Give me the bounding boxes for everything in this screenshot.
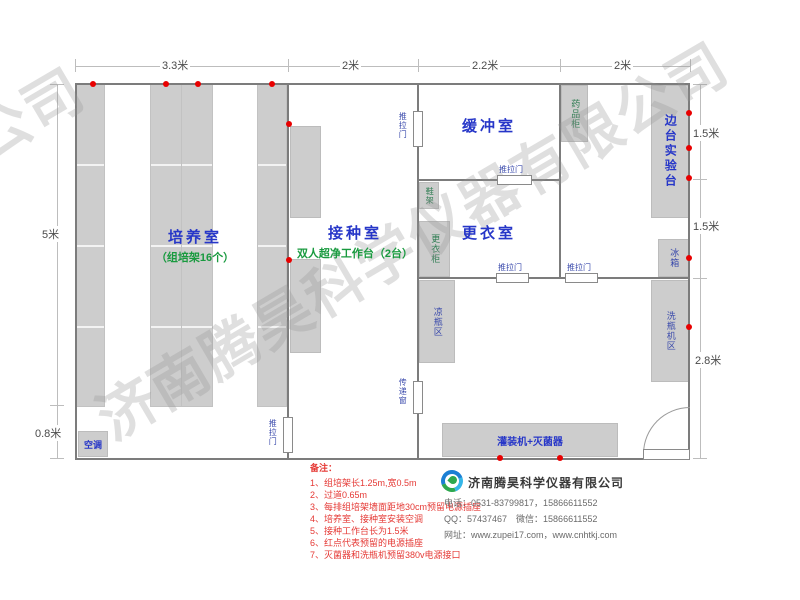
wall-changing-bottom xyxy=(418,277,690,279)
culture-room-name: 培养室 xyxy=(115,226,275,247)
dimension-tick xyxy=(693,179,707,180)
culture-room-label: 培养室 （组培架16个） xyxy=(115,226,275,265)
dimension-tick xyxy=(690,59,691,72)
changing-room-name: 更衣室 xyxy=(429,222,549,243)
power-outlet-dot xyxy=(497,455,503,461)
dim-top-3: 2.2米 xyxy=(470,57,500,73)
dimension-tick xyxy=(75,59,76,72)
sliding-door xyxy=(283,417,293,453)
floor-plan: 济南腾昊科学仪器有限公司 有限公司 3.3米 2米 2.2米 2米 5米 0.8… xyxy=(0,0,800,600)
power-outlet-dot xyxy=(686,324,692,330)
power-outlet-dot xyxy=(286,257,292,263)
outer-wall xyxy=(75,83,690,460)
entrance-door-leaf xyxy=(643,449,690,460)
power-outlet-dot xyxy=(686,175,692,181)
power-outlet-dot xyxy=(286,121,292,127)
dim-right-1: 1.5米 xyxy=(691,125,721,141)
power-outlet-dot xyxy=(686,110,692,116)
inoculation-room-sub: 双人超净工作台（2台） xyxy=(275,245,435,261)
power-outlet-dot xyxy=(90,81,96,87)
transfer-window xyxy=(413,381,423,414)
company-name: 济南腾昊科学仪器有限公司 xyxy=(468,474,624,491)
dimension-tick xyxy=(693,84,707,85)
sliding-door-label: 推拉门 xyxy=(499,165,523,174)
dim-left-1: 5米 xyxy=(40,226,61,242)
note-item: 7、灭菌器和洗瓶机预留380v电源接口 xyxy=(310,549,481,561)
company-logo-icon xyxy=(441,468,465,494)
dimension-tick xyxy=(418,59,419,72)
sliding-door xyxy=(496,273,529,283)
dim-top-1: 3.3米 xyxy=(160,57,190,73)
power-outlet-dot xyxy=(269,81,275,87)
dimension-tick xyxy=(693,458,707,459)
sliding-door-label: 推拉门 xyxy=(268,419,277,446)
dim-top-2: 2米 xyxy=(340,57,361,73)
wall-buffer-corridor xyxy=(559,83,561,279)
power-outlet-dot xyxy=(686,145,692,151)
sliding-door-label: 推拉门 xyxy=(498,263,522,272)
dimension-tick xyxy=(693,278,707,279)
sliding-door-label: 推拉门 xyxy=(398,112,407,139)
buffer-room-label: 缓冲室 xyxy=(429,115,549,136)
sliding-door-label: 推拉门 xyxy=(567,263,591,272)
dimension-tick xyxy=(288,59,289,72)
sliding-door xyxy=(497,175,532,185)
dim-left-2: 0.8米 xyxy=(33,425,63,441)
dim-right-2: 1.5米 xyxy=(691,218,721,234)
sliding-door xyxy=(565,273,598,283)
dimension-line xyxy=(57,84,58,459)
power-outlet-dot xyxy=(195,81,201,87)
power-outlet-dot xyxy=(163,81,169,87)
dim-right-3: 2.8米 xyxy=(693,352,723,368)
transfer-window-label: 传递窗 xyxy=(398,378,407,405)
dimension-tick xyxy=(560,59,561,72)
wall-culture-inoculation xyxy=(287,83,289,460)
power-outlet-dot xyxy=(686,255,692,261)
dimension-tick xyxy=(50,84,64,85)
power-outlet-dot xyxy=(557,455,563,461)
dimension-tick xyxy=(50,458,64,459)
company-phone: 电话：0531-83799817，15866611552 xyxy=(444,496,597,509)
inoculation-room-label: 接种室 双人超净工作台（2台） xyxy=(275,222,435,261)
sliding-door xyxy=(413,111,423,147)
company-website: 网址：www.zupei17.com，www.cnhtkj.com xyxy=(444,528,617,541)
changing-room-label: 更衣室 xyxy=(429,222,549,243)
dim-top-4: 2米 xyxy=(612,57,633,73)
buffer-room-name: 缓冲室 xyxy=(429,115,549,136)
dimension-tick xyxy=(50,405,64,406)
culture-room-sub: （组培架16个） xyxy=(115,249,275,265)
wall-buffer-changing xyxy=(418,179,560,181)
company-qq-wechat: QQ：57437467 微信：15866611552 xyxy=(444,512,597,525)
inoculation-room-name: 接种室 xyxy=(275,222,435,243)
